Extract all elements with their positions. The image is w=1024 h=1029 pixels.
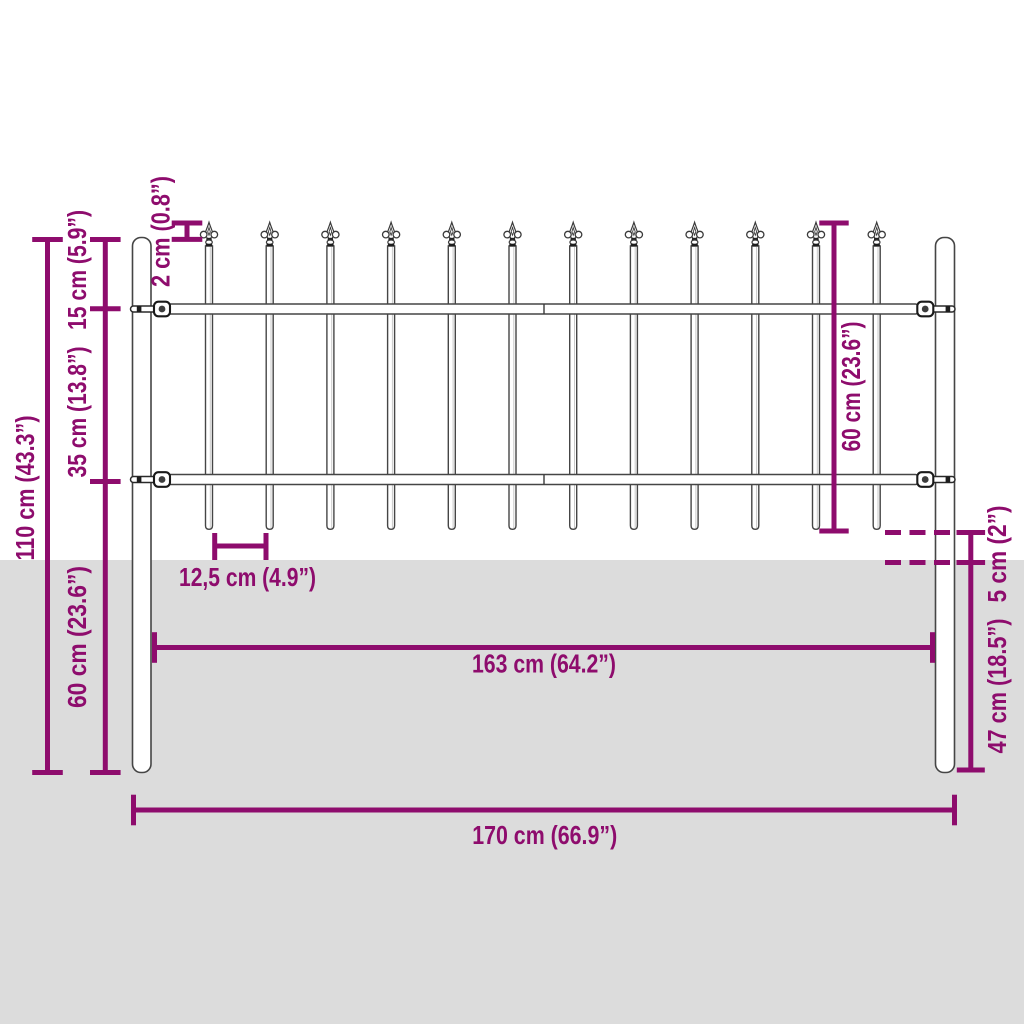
svg-text:47 cm (18.5”): 47 cm (18.5”): [982, 619, 1012, 754]
svg-text:60 cm (23.6”): 60 cm (23.6”): [62, 566, 92, 708]
svg-text:5 cm (2”): 5 cm (2”): [982, 506, 1012, 603]
svg-text:163 cm (64.2”): 163 cm (64.2”): [472, 649, 616, 679]
svg-text:2 cm (0.8”): 2 cm (0.8”): [146, 176, 176, 287]
svg-text:170 cm (66.9”): 170 cm (66.9”): [472, 820, 617, 850]
svg-text:60 cm (23.6”): 60 cm (23.6”): [836, 322, 866, 452]
svg-text:110 cm (43.3”): 110 cm (43.3”): [10, 416, 40, 561]
svg-text:15 cm (5.9”): 15 cm (5.9”): [62, 210, 92, 330]
svg-text:12,5 cm (4.9”): 12,5 cm (4.9”): [179, 562, 316, 592]
svg-text:35 cm (13.8”): 35 cm (13.8”): [62, 347, 92, 478]
